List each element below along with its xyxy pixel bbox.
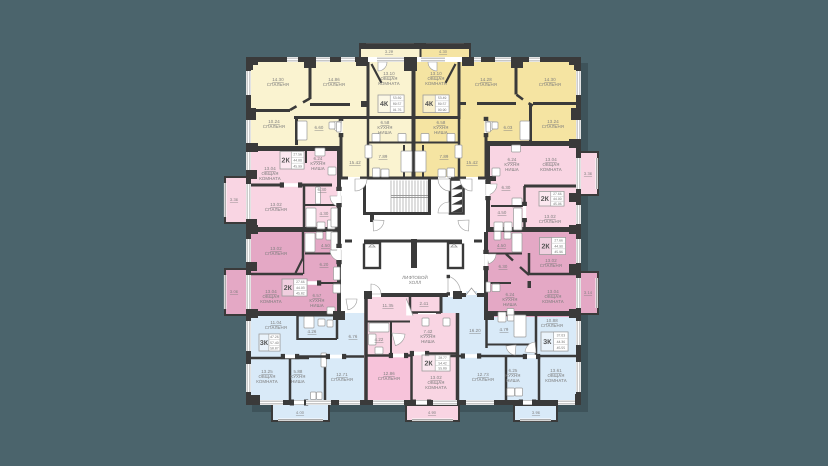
svg-text:27.66: 27.66: [553, 192, 562, 196]
svg-text:15.42: 15.42: [349, 160, 361, 165]
svg-text:7.89: 7.89: [379, 154, 388, 159]
svg-text:4.79: 4.79: [500, 327, 509, 332]
svg-text:45.82: 45.82: [296, 291, 305, 295]
svg-text:16.20: 16.20: [469, 328, 481, 333]
svg-text:57.40: 57.40: [270, 341, 279, 345]
svg-text:3.14: 3.14: [584, 290, 593, 295]
svg-text:6.20: 6.20: [320, 262, 329, 267]
svg-text:2К: 2К: [284, 285, 293, 292]
svg-text:45.55: 45.55: [557, 346, 566, 350]
svg-text:44.36: 44.36: [557, 340, 566, 344]
svg-text:4.00: 4.00: [296, 410, 305, 415]
svg-text:4.50: 4.50: [498, 210, 507, 215]
svg-text:37.03: 37.03: [557, 333, 566, 337]
svg-text:54.42: 54.42: [438, 361, 447, 365]
svg-text:90.90: 90.90: [438, 108, 447, 112]
svg-text:45.96: 45.96: [553, 202, 562, 206]
svg-text:45.99: 45.99: [293, 164, 302, 168]
svg-text:4.90: 4.90: [428, 410, 437, 415]
svg-text:47.26: 47.26: [270, 335, 279, 339]
svg-text:6.30: 6.30: [318, 187, 327, 192]
svg-text:3.06: 3.06: [230, 289, 239, 294]
svg-text:28.77: 28.77: [438, 356, 447, 360]
svg-text:6.76: 6.76: [349, 334, 358, 339]
svg-text:3.36: 3.36: [230, 197, 239, 202]
svg-text:44.90: 44.90: [553, 197, 562, 201]
svg-text:3К: 3К: [260, 340, 269, 347]
svg-text:4.30: 4.30: [320, 211, 329, 216]
svg-text:3.36: 3.36: [584, 171, 593, 176]
svg-text:6.03: 6.03: [504, 125, 513, 130]
svg-text:89.57: 89.57: [438, 102, 447, 106]
svg-text:4.50: 4.50: [321, 243, 330, 248]
svg-text:44.80: 44.80: [293, 159, 302, 163]
svg-text:3.96: 3.96: [532, 410, 541, 415]
svg-text:6.60: 6.60: [315, 125, 324, 130]
svg-text:91.76: 91.76: [393, 108, 402, 112]
svg-text:4.26: 4.26: [308, 329, 317, 334]
svg-text:45.96: 45.96: [554, 250, 563, 254]
svg-text:89.57: 89.57: [393, 102, 402, 106]
svg-text:58.87: 58.87: [270, 346, 279, 350]
svg-text:2К: 2К: [282, 158, 291, 165]
svg-text:27.56: 27.56: [293, 153, 302, 157]
svg-text:3К: 3К: [543, 339, 552, 346]
svg-text:2К: 2К: [542, 243, 551, 250]
svg-text:15.42: 15.42: [466, 160, 478, 165]
svg-text:3.29: 3.29: [385, 49, 394, 54]
svg-text:4.30: 4.30: [439, 49, 448, 54]
svg-text:2К: 2К: [541, 196, 550, 203]
svg-text:7.89: 7.89: [440, 154, 449, 159]
svg-text:53.49: 53.49: [438, 96, 447, 100]
svg-text:44.93: 44.93: [296, 286, 305, 290]
svg-text:53.69: 53.69: [393, 96, 402, 100]
svg-text:11.35: 11.35: [382, 303, 394, 308]
svg-text:27.66: 27.66: [296, 280, 305, 284]
svg-text:27.66: 27.66: [554, 239, 563, 243]
svg-text:44.90: 44.90: [554, 244, 563, 248]
svg-text:2К: 2К: [424, 360, 433, 367]
svg-text:4.22: 4.22: [375, 337, 384, 342]
svg-text:4К: 4К: [380, 101, 389, 108]
svg-text:2.41: 2.41: [420, 301, 429, 306]
svg-text:6.30: 6.30: [502, 185, 511, 190]
svg-text:4.50: 4.50: [497, 243, 506, 248]
svg-text:6.30: 6.30: [499, 264, 508, 269]
svg-text:4К: 4К: [425, 101, 434, 108]
svg-text:55.89: 55.89: [438, 367, 447, 371]
